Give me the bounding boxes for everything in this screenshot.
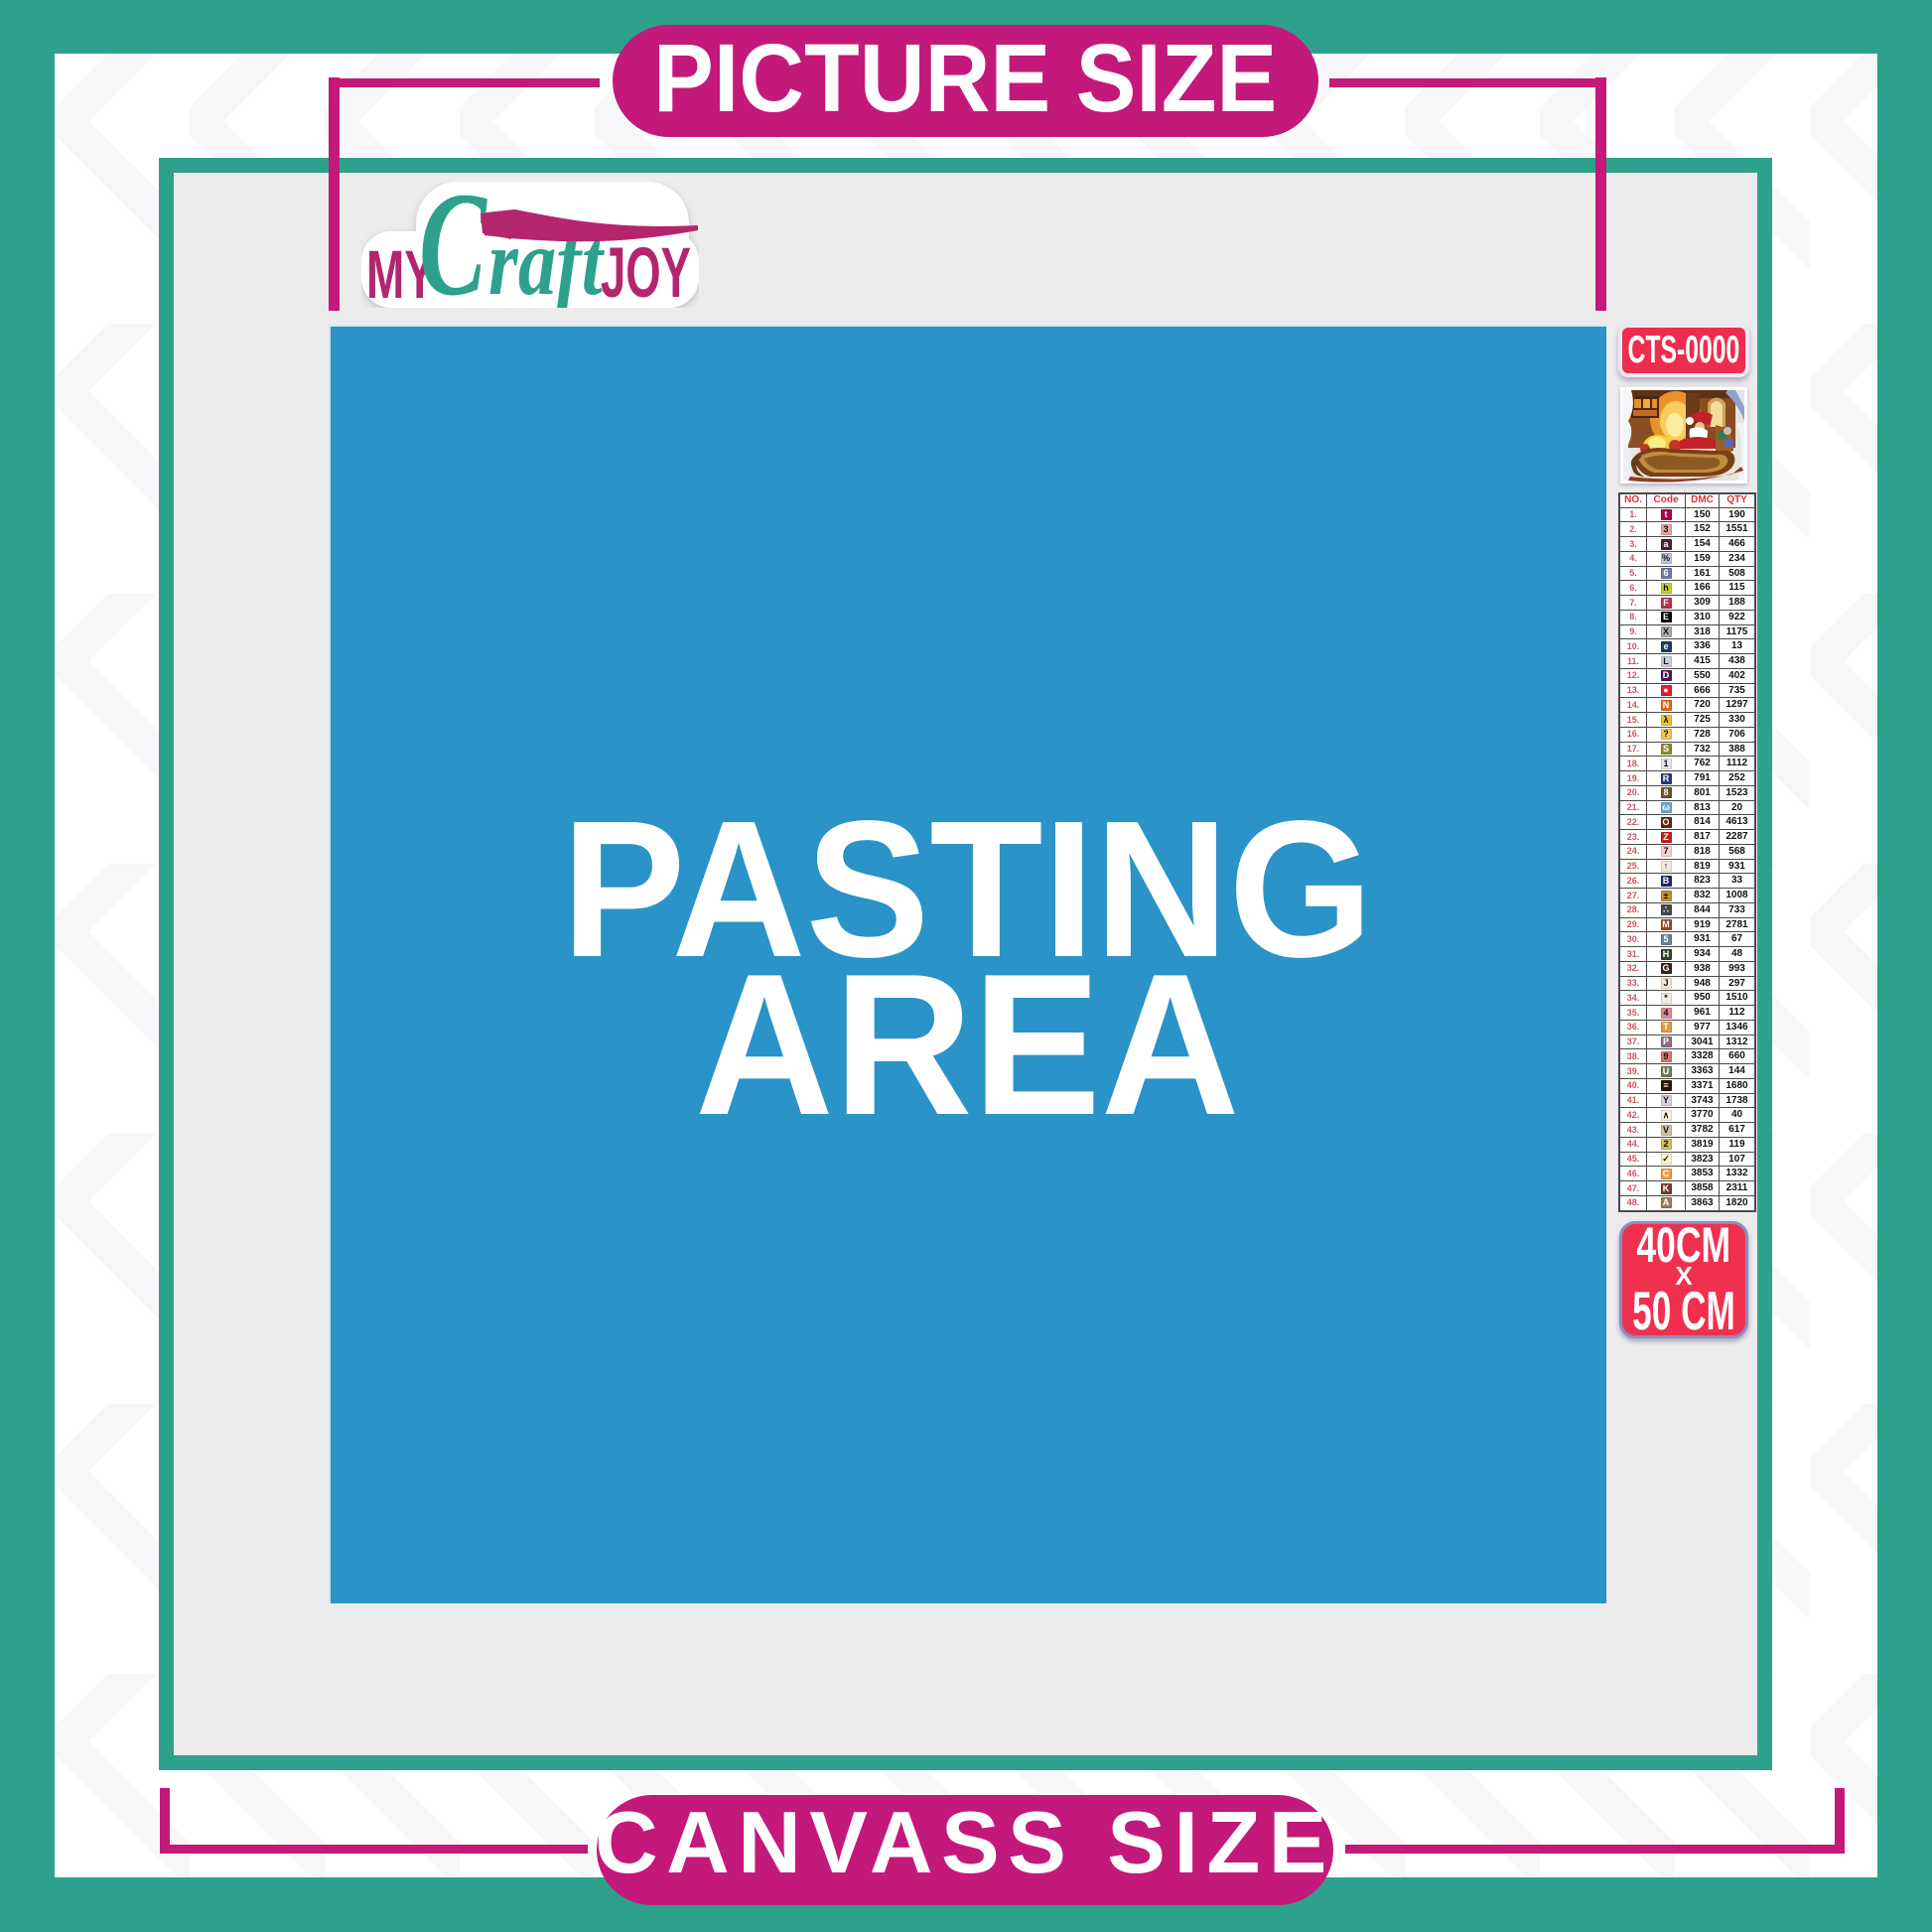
svg-text:C: C bbox=[419, 182, 487, 308]
svg-text:JOY: JOY bbox=[601, 234, 691, 308]
